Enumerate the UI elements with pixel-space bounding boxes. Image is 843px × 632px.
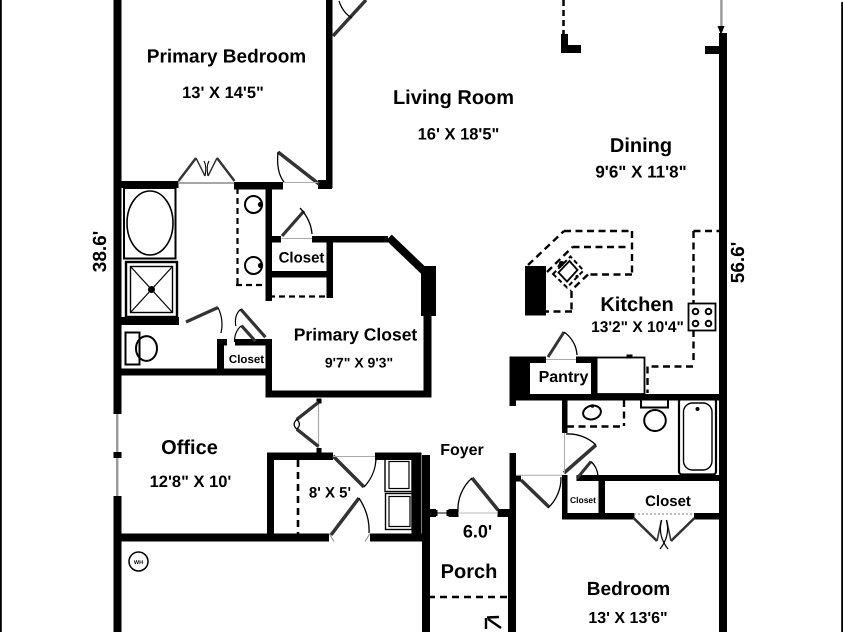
svg-text:9'6" X 11'8": 9'6" X 11'8"	[595, 163, 686, 182]
svg-text:Primary Closet: Primary Closet	[294, 325, 418, 345]
svg-text:Closet: Closet	[279, 250, 325, 267]
svg-text:Closet: Closet	[645, 493, 691, 510]
svg-text:8' X 5': 8' X 5'	[309, 485, 351, 502]
svg-text:12'8" X 10': 12'8" X 10'	[150, 473, 232, 491]
svg-text:13' X 14'5": 13' X 14'5"	[182, 84, 264, 102]
svg-text:6.0': 6.0'	[463, 522, 492, 542]
svg-text:Living Room: Living Room	[393, 87, 514, 109]
svg-text:Foyer: Foyer	[440, 442, 484, 459]
svg-text:Pantry: Pantry	[539, 369, 589, 386]
svg-text:Closet: Closet	[229, 354, 264, 366]
svg-text:13'2" X 10'4": 13'2" X 10'4"	[591, 319, 684, 336]
svg-text:9'7" X 9'3": 9'7" X 9'3"	[325, 355, 393, 371]
svg-text:Porch: Porch	[441, 561, 498, 583]
svg-text:Primary Bedroom: Primary Bedroom	[147, 47, 306, 68]
svg-text:Bedroom: Bedroom	[587, 579, 670, 600]
svg-text:Office: Office	[161, 437, 218, 459]
svg-text:38.6': 38.6'	[90, 231, 111, 273]
svg-text:Kitchen: Kitchen	[600, 294, 673, 316]
svg-text:Dining: Dining	[610, 135, 672, 157]
svg-text:13' X 13'6": 13' X 13'6"	[588, 610, 667, 627]
svg-text:56.6': 56.6'	[728, 242, 749, 284]
svg-text:WH: WH	[134, 560, 143, 566]
svg-text:16' X 18'5": 16' X 18'5"	[418, 126, 500, 144]
svg-text:Closet: Closet	[570, 495, 596, 505]
